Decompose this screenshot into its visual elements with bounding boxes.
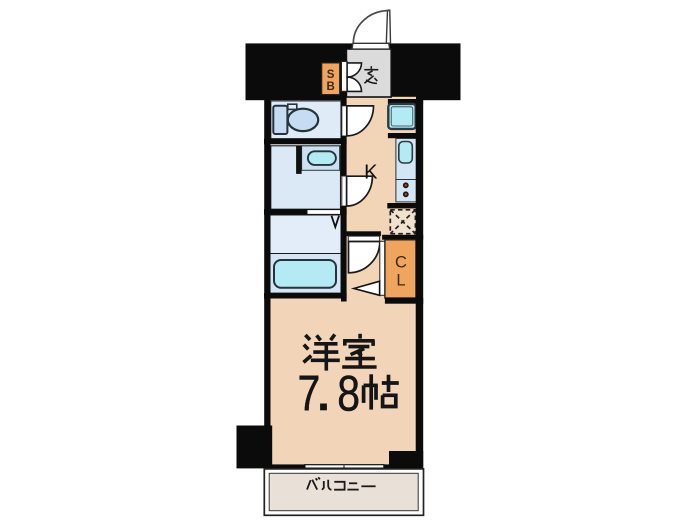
svg-text:8: 8 — [337, 365, 360, 421]
svg-text:S: S — [327, 69, 335, 81]
svg-text:B: B — [326, 81, 334, 93]
svg-text:K: K — [364, 161, 378, 183]
svg-text:L: L — [396, 272, 405, 290]
svg-text:7: 7 — [298, 365, 321, 421]
svg-text:C: C — [395, 254, 407, 272]
